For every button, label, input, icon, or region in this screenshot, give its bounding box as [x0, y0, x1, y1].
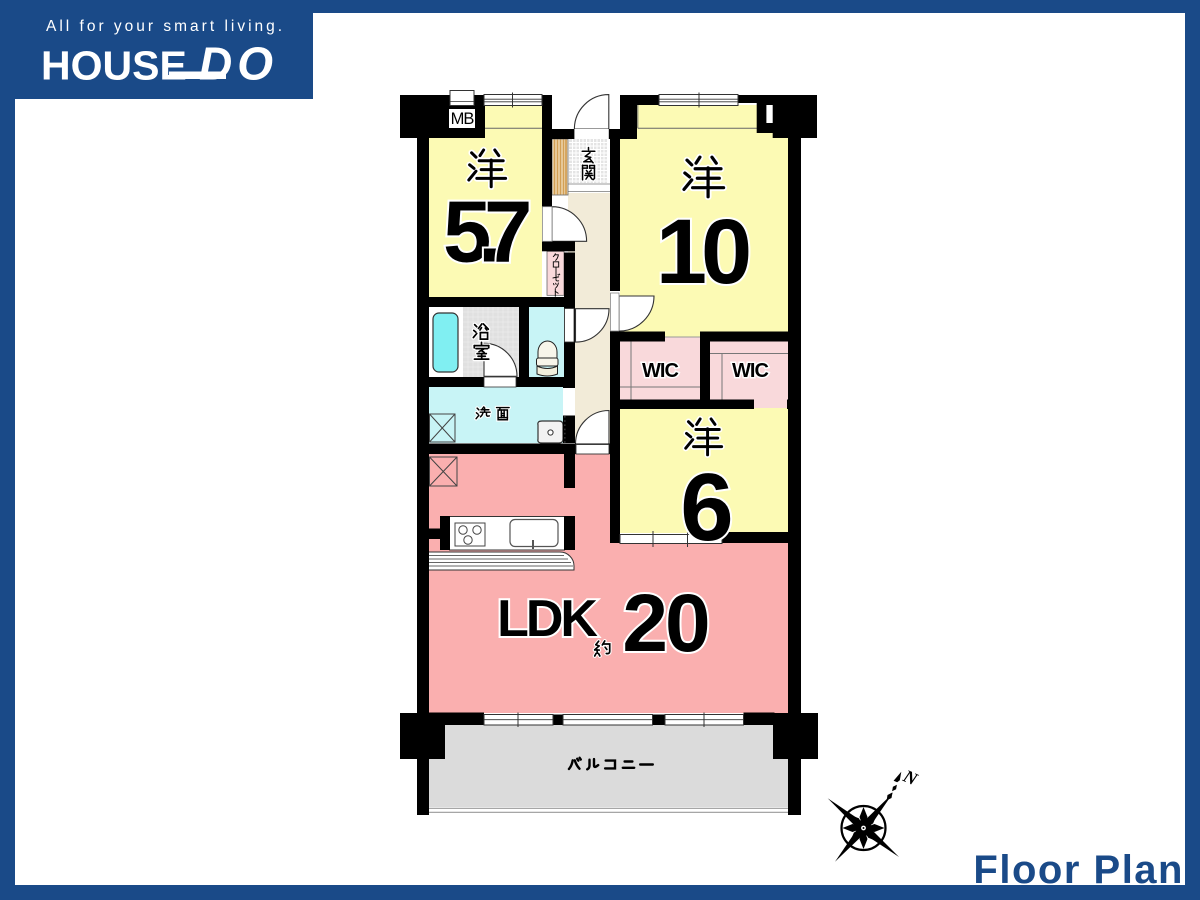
svg-text:20: 20	[622, 578, 708, 669]
svg-text:WIC: WIC	[732, 360, 768, 382]
svg-text:Floor Plan: Floor Plan	[973, 848, 1184, 892]
svg-text:6: 6	[680, 454, 733, 561]
svg-text:LDK: LDK	[497, 590, 598, 648]
svg-text:7: 7	[484, 184, 532, 281]
svg-text:MB: MB	[451, 110, 475, 128]
svg-text:All for your smart living.: All for your smart living.	[46, 18, 285, 35]
svg-text:WIC: WIC	[642, 360, 678, 382]
svg-text:DO: DO	[199, 38, 278, 90]
svg-text:10: 10	[656, 201, 749, 303]
svg-text:HOUSE: HOUSE	[41, 43, 187, 89]
